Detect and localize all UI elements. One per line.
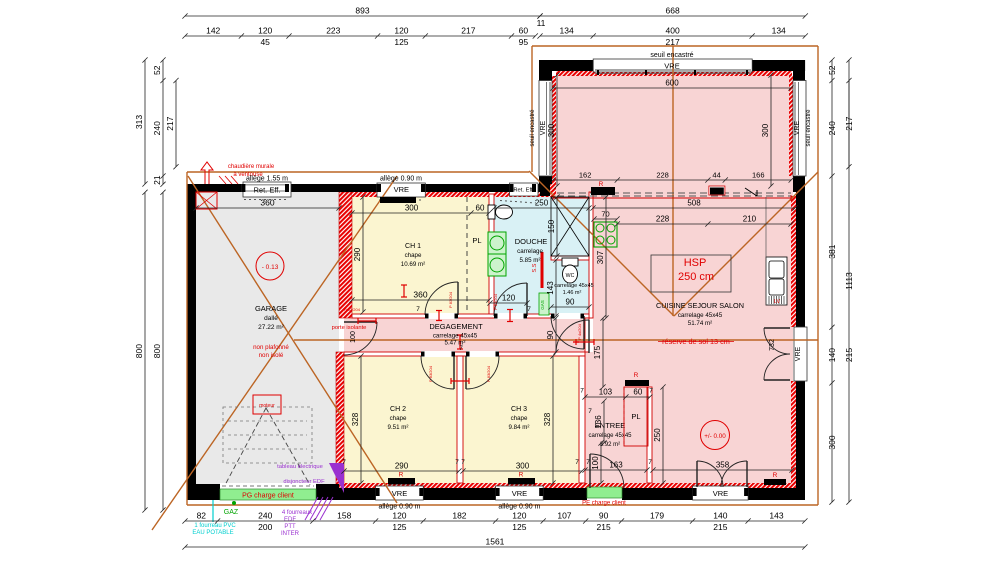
svg-text:179: 179 xyxy=(650,511,664,521)
svg-text:217: 217 xyxy=(666,37,680,47)
svg-text:125: 125 xyxy=(394,37,408,47)
svg-text:182: 182 xyxy=(452,511,466,521)
svg-text:VRE: VRE xyxy=(394,185,409,194)
svg-text:P 83/204: P 83/204 xyxy=(344,307,361,312)
svg-text:300: 300 xyxy=(516,462,530,471)
svg-text:143: 143 xyxy=(546,281,555,295)
svg-text:R: R xyxy=(519,472,524,479)
svg-text:45: 45 xyxy=(260,37,270,47)
svg-text:134: 134 xyxy=(560,26,574,36)
svg-text:CH 3: CH 3 xyxy=(511,406,527,413)
svg-text:7: 7 xyxy=(342,459,346,466)
svg-text:P 83/204: P 83/204 xyxy=(428,365,433,382)
svg-text:allège 0.90 m: allège 0.90 m xyxy=(380,176,422,183)
svg-text:carrelage 45x45: carrelage 45x45 xyxy=(554,283,593,289)
svg-text:200: 200 xyxy=(258,522,272,532)
svg-text:210: 210 xyxy=(743,215,757,224)
svg-text:11: 11 xyxy=(537,18,546,28)
svg-text:27.22 m²: 27.22 m² xyxy=(258,324,284,331)
svg-text:carrelage 45x45: carrelage 45x45 xyxy=(433,333,478,340)
svg-text:EDF: EDF xyxy=(284,517,296,523)
svg-text:134: 134 xyxy=(772,26,786,36)
svg-text:95: 95 xyxy=(519,37,529,47)
svg-text:217: 217 xyxy=(165,116,175,130)
svg-text:tableau électrique: tableau électrique xyxy=(277,464,323,470)
svg-text:668: 668 xyxy=(666,6,680,16)
svg-text:4 fourreaux: 4 fourreaux xyxy=(282,510,312,516)
svg-text:PE charge client: PE charge client xyxy=(582,501,626,507)
svg-text:250: 250 xyxy=(535,199,549,208)
svg-text:chape: chape xyxy=(405,252,422,259)
svg-text:290: 290 xyxy=(353,247,362,261)
svg-text:carrelage: carrelage xyxy=(517,248,543,255)
svg-text:51.74 m²: 51.74 m² xyxy=(688,320,712,327)
svg-text:250 cm: 250 cm xyxy=(678,271,714,283)
svg-text:21: 21 xyxy=(152,175,162,185)
svg-text:7: 7 xyxy=(461,459,465,466)
svg-text:chape: chape xyxy=(390,415,407,422)
svg-text:Ret. Eff.: Ret. Eff. xyxy=(513,188,534,194)
svg-text:PG charge client: PG charge client xyxy=(242,493,294,500)
svg-text:290: 290 xyxy=(395,462,409,471)
svg-text:508: 508 xyxy=(687,199,701,208)
svg-text:360: 360 xyxy=(413,290,427,300)
svg-text:P 4x/204: P 4x/204 xyxy=(577,323,582,339)
svg-text:HSP: HSP xyxy=(684,257,707,269)
svg-text:non isolé: non isolé xyxy=(259,352,284,359)
svg-text:7: 7 xyxy=(586,459,590,466)
svg-text:158: 158 xyxy=(337,511,351,521)
svg-text:3.92 m²: 3.92 m² xyxy=(600,442,620,448)
svg-text:EAU POTABLE: EAU POTABLE xyxy=(192,530,233,536)
svg-text:seuil encastré: seuil encastré xyxy=(530,109,536,147)
svg-text:+/- 0.00: +/- 0.00 xyxy=(704,433,726,440)
svg-text:215: 215 xyxy=(597,522,611,532)
svg-text:136: 136 xyxy=(594,415,603,429)
svg-text:60: 60 xyxy=(519,26,529,36)
svg-text:893: 893 xyxy=(355,6,369,16)
svg-text:allège 0.90 m: allège 0.90 m xyxy=(498,504,540,511)
svg-text:100: 100 xyxy=(591,456,600,470)
svg-text:1 fourreau PVC: 1 fourreau PVC xyxy=(194,523,236,529)
svg-text:carrelage 45x45: carrelage 45x45 xyxy=(588,433,632,439)
svg-text:120: 120 xyxy=(502,294,516,303)
svg-text:240: 240 xyxy=(258,511,272,521)
svg-text:R: R xyxy=(634,372,639,379)
svg-text:250: 250 xyxy=(653,428,662,442)
svg-text:9.51 m²: 9.51 m² xyxy=(388,424,409,431)
svg-text:allège 0.90 m: allège 0.90 m xyxy=(378,504,420,511)
svg-text:DEGAGEMENT: DEGAGEMENT xyxy=(429,322,483,331)
svg-text:7: 7 xyxy=(649,388,653,395)
svg-text:142: 142 xyxy=(206,26,220,36)
svg-text:120: 120 xyxy=(392,511,406,521)
svg-text:44: 44 xyxy=(712,171,720,180)
svg-text:240: 240 xyxy=(827,121,837,135)
svg-text:carrelage 45x45: carrelage 45x45 xyxy=(678,312,723,319)
svg-text:381: 381 xyxy=(827,244,837,258)
svg-text:CH 1: CH 1 xyxy=(405,243,421,250)
svg-text:7: 7 xyxy=(459,345,463,352)
svg-text:52: 52 xyxy=(152,65,162,75)
svg-text:R: R xyxy=(399,472,404,479)
svg-text:- 0.13: - 0.13 xyxy=(262,264,279,271)
svg-text:90: 90 xyxy=(546,330,555,339)
svg-text:120: 120 xyxy=(394,26,408,36)
svg-text:PTT: PTT xyxy=(284,524,296,530)
svg-text:9.84 m²: 9.84 m² xyxy=(509,424,530,431)
svg-text:7: 7 xyxy=(648,459,652,466)
svg-text:chape: chape xyxy=(511,415,528,422)
svg-text:140: 140 xyxy=(713,511,727,521)
svg-text:162: 162 xyxy=(579,171,592,180)
svg-text:90: 90 xyxy=(566,298,575,307)
svg-text:VRE: VRE xyxy=(392,489,407,498)
svg-text:358: 358 xyxy=(716,461,730,470)
svg-text:120: 120 xyxy=(512,511,526,521)
svg-text:GAS: GAS xyxy=(540,300,545,310)
svg-text:307: 307 xyxy=(596,250,605,264)
svg-text:VRE: VRE xyxy=(713,489,728,498)
svg-text:223: 223 xyxy=(326,26,340,36)
svg-text:143: 143 xyxy=(769,511,783,521)
svg-text:disjoncteur EDF: disjoncteur EDF xyxy=(283,479,325,485)
svg-text:300: 300 xyxy=(827,435,837,449)
svg-text:non plafonné: non plafonné xyxy=(253,344,289,351)
svg-text:1.46 m²: 1.46 m² xyxy=(563,290,582,296)
svg-text:P 83/204: P 83/204 xyxy=(486,365,491,382)
svg-text:seuil encastré: seuil encastré xyxy=(806,109,812,147)
svg-text:175: 175 xyxy=(593,345,602,359)
svg-text:dallé: dallé xyxy=(264,315,278,322)
svg-text:7: 7 xyxy=(588,408,592,415)
svg-text:moteur: moteur xyxy=(259,403,275,409)
svg-text:R: R xyxy=(773,472,778,479)
svg-text:1561: 1561 xyxy=(485,537,504,547)
svg-text:800: 800 xyxy=(134,344,144,358)
svg-text:140: 140 xyxy=(827,348,837,362)
svg-text:328: 328 xyxy=(543,412,552,426)
svg-text:7: 7 xyxy=(416,306,420,313)
svg-text:82: 82 xyxy=(197,511,207,521)
svg-text:7: 7 xyxy=(580,388,584,395)
svg-text:10.69 m²: 10.69 m² xyxy=(401,261,425,268)
svg-text:S.S: S.S xyxy=(532,263,538,272)
svg-text:300: 300 xyxy=(405,204,419,213)
svg-text:107: 107 xyxy=(557,511,571,521)
svg-text:52: 52 xyxy=(827,65,837,75)
svg-text:800: 800 xyxy=(152,344,162,358)
svg-text:166: 166 xyxy=(752,171,765,180)
svg-text:WC: WC xyxy=(566,273,575,279)
svg-text:CUISINE SEJOUR SALON: CUISINE SEJOUR SALON xyxy=(656,301,744,310)
svg-text:7: 7 xyxy=(455,459,459,466)
svg-text:allège 1.55 m: allège 1.55 m xyxy=(246,176,288,183)
svg-text:VRE: VRE xyxy=(795,346,802,361)
svg-text:1113: 1113 xyxy=(844,272,854,290)
svg-text:60: 60 xyxy=(476,204,485,213)
svg-text:125: 125 xyxy=(512,522,526,532)
svg-text:CH 2: CH 2 xyxy=(390,406,406,413)
svg-text:7: 7 xyxy=(575,459,579,466)
svg-text:90: 90 xyxy=(599,511,609,521)
svg-text:360: 360 xyxy=(260,198,274,208)
svg-text:P 83/204: P 83/204 xyxy=(493,293,498,310)
svg-text:300: 300 xyxy=(761,123,770,137)
svg-text:328: 328 xyxy=(351,412,360,426)
svg-text:60: 60 xyxy=(633,388,642,397)
svg-text:7: 7 xyxy=(527,306,531,313)
svg-text:313: 313 xyxy=(134,115,144,129)
svg-text:400: 400 xyxy=(666,26,680,36)
svg-text:seuil encastré: seuil encastré xyxy=(650,52,693,59)
svg-text:240: 240 xyxy=(152,121,162,135)
svg-text:70: 70 xyxy=(601,210,609,219)
svg-text:732: 732 xyxy=(769,339,776,351)
svg-text:VRE: VRE xyxy=(794,120,801,135)
svg-text:120: 120 xyxy=(258,26,272,36)
svg-text:600: 600 xyxy=(665,79,679,88)
svg-text:VRE: VRE xyxy=(512,489,527,498)
svg-text:125: 125 xyxy=(392,522,406,532)
svg-text:PL: PL xyxy=(472,236,481,245)
svg-text:228: 228 xyxy=(656,215,670,224)
svg-text:228: 228 xyxy=(656,171,669,180)
svg-text:GAZ: GAZ xyxy=(224,509,239,516)
svg-text:150: 150 xyxy=(547,219,556,233)
svg-text:INTER: INTER xyxy=(281,531,300,537)
svg-text:163: 163 xyxy=(609,461,623,470)
svg-text:Ret. Eff.: Ret. Eff. xyxy=(254,186,281,195)
svg-text:GARAGE: GARAGE xyxy=(255,304,287,313)
svg-text:porte isolante: porte isolante xyxy=(332,325,367,331)
svg-text:300: 300 xyxy=(547,123,556,137)
svg-text:5.85 m²: 5.85 m² xyxy=(520,257,541,264)
svg-text:LV: LV xyxy=(774,299,781,305)
svg-text:217: 217 xyxy=(461,26,475,36)
svg-text:PL: PL xyxy=(631,412,640,421)
svg-text:R: R xyxy=(599,181,604,188)
svg-text:100: 100 xyxy=(350,331,357,343)
svg-text:VRE: VRE xyxy=(664,62,679,71)
svg-text:chaudière murale: chaudière murale xyxy=(228,164,275,170)
svg-text:VRE: VRE xyxy=(540,120,547,135)
svg-text:215: 215 xyxy=(844,348,854,362)
svg-text:215: 215 xyxy=(713,522,727,532)
svg-text:DOUCHE: DOUCHE xyxy=(515,237,548,246)
